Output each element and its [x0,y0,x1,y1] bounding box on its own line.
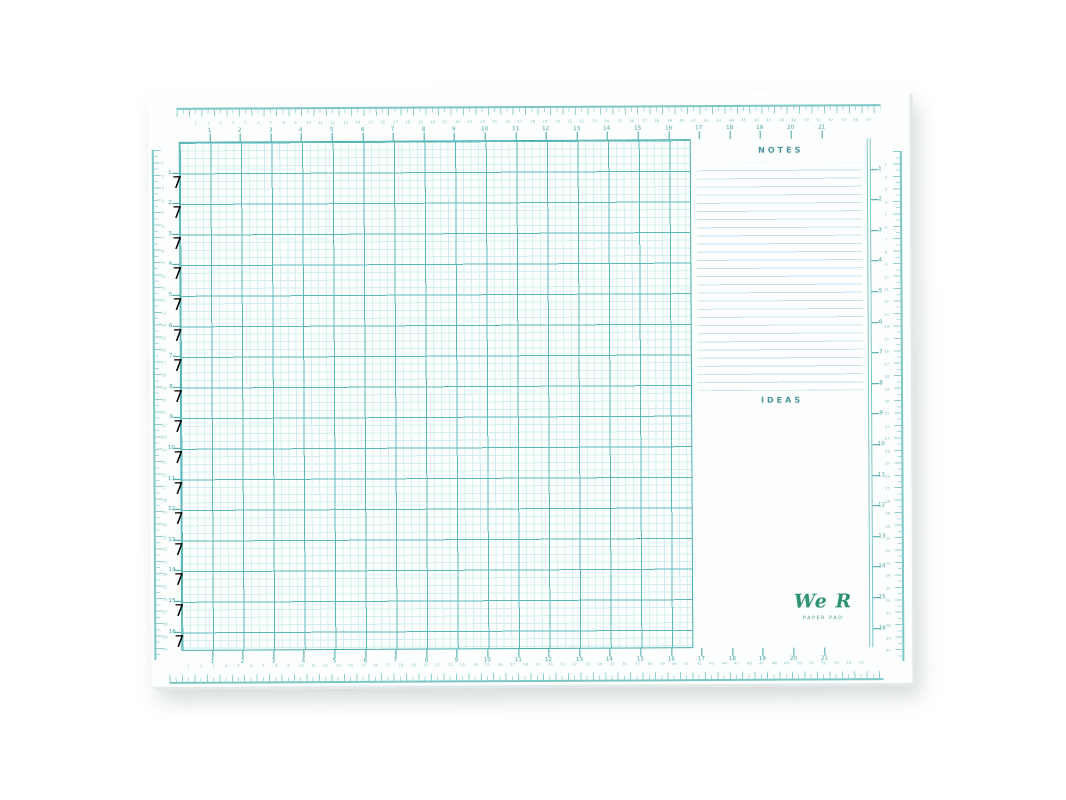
right-edge-ruler-number: 26 [885,475,890,479]
right-edge-ruler-number: 38 [886,624,891,628]
left-edge-ruler-number: 40 [163,648,168,652]
inner-right-ruler [867,138,874,647]
bottom-edge-ruler-number: 50 [797,662,802,666]
left-edge-ruler-number: 27 [162,486,167,490]
grid-col-tick [638,131,639,139]
grid-col-tick [824,647,825,655]
grid-col-number: 12 [542,126,549,132]
grid-col-tick [212,651,213,659]
left-edge-ruler-number: 22 [162,424,167,428]
grid-row-number: 9 [879,411,883,417]
grid-col-number: 4 [299,127,303,133]
left-edge-ruler-number: 29 [162,511,167,515]
left-edge-ruler-number: 18 [162,374,167,378]
grid-col-tick [423,133,424,141]
grid-col-number: 19 [756,125,763,131]
left-edge-ruler-number: 37 [163,611,168,615]
grid-row-tick: 7 [173,448,180,449]
grid-row-tick: 7 [174,509,181,510]
top-edge-ruler-number: 46 [754,119,759,123]
left-edge-ruler-number: 25 [162,461,167,465]
grid-row-tick [872,444,879,445]
grid-row-tick [873,536,880,537]
left-edge-ruler-number: 20 [162,399,167,403]
bottom-edge-ruler-number: 52 [821,662,826,666]
right-edge-ruler-number: 2 [885,176,887,180]
top-edge-ruler-number: 51 [816,119,821,123]
bottom-edge-ruler-number: 36 [622,663,627,667]
grid-row-number: 6 [879,319,883,325]
right-edge-ruler-number: 20 [885,400,890,404]
grid-col-number: 3 [269,128,273,134]
bottom-edge-ruler-number: 39 [660,662,665,666]
left-edge-ruler-number: 2 [162,175,164,179]
grid-row-tick: 7 [173,295,180,296]
grid-col-tick [671,648,672,656]
bottom-edge-ruler-number: 16 [373,664,378,668]
top-edge-ruler-number: 28 [530,120,535,124]
right-edge-ruler-number: 9 [885,263,887,267]
bottom-edge-ruler-number: 37 [635,663,640,667]
right-edge-ruler-number: 23 [885,438,890,442]
bottom-edge-ruler-number: 47 [759,662,764,666]
grid-col-tick [549,649,550,657]
bottom-edge-ruler-number: 3 [213,665,215,669]
bottom-edge-ruler-number: 23 [460,663,465,667]
grid-col-tick [243,651,244,659]
bottom-edge-ruler-number: 43 [709,662,714,666]
bottom-edge-ruler [169,668,883,684]
top-edge-ruler-number: 53 [841,118,846,122]
top-edge-ruler-number: 30 [555,120,560,124]
left-edge-ruler-number: 12 [161,299,166,303]
bottom-edge-ruler-number: 29 [535,663,540,667]
top-edge-ruler-number: 47 [766,119,771,123]
bottom-edge-ruler-number: 38 [647,663,652,667]
left-edge-ruler-number: 34 [163,573,168,577]
grid-col-tick [332,133,333,141]
left-edge-ruler-number: 36 [163,598,168,602]
top-edge-ruler-number: 7 [270,121,272,125]
right-edge-ruler-number: 24 [885,450,890,454]
grid-col-number: 13 [573,126,580,132]
grid-row-tick: 7 [172,172,179,173]
grid-col-number: 2 [241,659,245,665]
left-edge-ruler-number: 32 [162,548,167,552]
left-edge-ruler-number: 23 [162,436,167,440]
top-edge-ruler-number: 3 [220,122,222,126]
bottom-edge-ruler-number: 2 [200,665,202,669]
grid-col-tick [668,131,669,139]
left-edge-ruler-number: 33 [163,561,168,565]
grid-row-tick [871,199,878,200]
top-edge-ruler-number: 43 [717,119,722,123]
top-edge-ruler-number: 40 [679,119,684,123]
top-edge-ruler-number: 1 [195,122,197,126]
top-edge-ruler-number: 4 [232,122,234,126]
grid-row-tick [871,291,878,292]
top-edge-ruler-number: 22 [455,121,460,125]
grid-col-number: 6 [360,127,364,133]
bottom-edge-ruler-number: 34 [597,663,602,667]
left-edge-ruler-number: 8 [162,250,164,254]
left-edge-ruler-number: 7 [162,237,164,241]
grid-row-tick: 7 [174,631,181,632]
left-edge-ruler-number: 9 [162,262,164,266]
notes-title: NOTES [758,146,803,155]
bottom-edge-ruler-number: 26 [498,663,503,667]
left-edge-ruler-number: 28 [162,499,167,503]
grid-col-number: 11 [514,657,521,663]
top-edge-ruler-number: 34 [605,120,610,124]
left-edge-ruler-number: 5 [162,212,164,216]
bottom-edge-ruler-number: 45 [734,662,739,666]
right-edge-ruler-number: 14 [884,326,889,330]
bottom-edge-ruler-number: 46 [747,662,752,666]
top-edge-ruler-number: 55 [866,118,871,122]
top-edge-ruler-number: 10 [306,121,311,125]
grid-col-number: 9 [452,127,456,133]
grid-col-tick [760,131,761,139]
graph-grid [179,139,694,651]
left-edge-ruler-number: 26 [162,474,167,478]
top-edge-ruler-number: 26 [505,120,510,124]
grid-row-tick [872,322,879,323]
right-edge-ruler-number: 16 [884,350,889,354]
right-edge-ruler-number: 30 [885,525,890,529]
left-edge-ruler-number: 24 [162,449,167,453]
left-edge-ruler-number: 21 [162,411,167,415]
bottom-edge-ruler-number: 25 [485,663,490,667]
bottom-edge-ruler-number: 9 [287,664,289,668]
bottom-edge-ruler-number: 8 [275,664,277,668]
left-edge-ruler-number: 17 [161,362,166,366]
top-edge-ruler-number: 32 [580,120,585,124]
bottom-edge-ruler-number: 19 [411,664,416,668]
top-edge-ruler-number: 2 [207,122,209,126]
bottom-edge-ruler-number: 53 [834,662,839,666]
bottom-edge-ruler-number: 54 [846,661,851,665]
grid-row-tick [871,261,878,262]
left-edge-ruler-number: 10 [161,275,166,279]
bottom-edge-ruler-number: 6 [250,665,252,669]
grid-col-number: 17 [695,125,702,131]
brand-logo: We R PAPER PAD [763,592,883,622]
grid-row-tick: 7 [174,601,181,602]
right-edge-ruler-number: 12 [884,301,889,305]
left-edge-ruler-number: 11 [161,287,166,291]
grid-col-number: 7 [394,658,398,664]
grid-col-tick [640,648,641,656]
top-edge-ruler-number: 15 [368,121,373,125]
left-edge-ruler-number: 6 [162,225,164,229]
grid-col-tick [240,134,241,142]
top-edge-ruler-number: 37 [642,120,647,124]
grid-col-tick [487,649,488,657]
grid-col-tick [821,130,822,138]
bottom-edge-ruler-number: 31 [560,663,565,667]
grid-col-tick [793,648,794,656]
left-edge-ruler-number: 14 [161,324,166,328]
grid-col-tick [576,132,577,140]
grid-col-number: 1 [207,128,211,134]
bottom-edge-ruler-number: 12 [323,664,328,668]
grid-col-number: 20 [787,125,794,131]
bottom-edge-ruler-number: 41 [685,662,690,666]
left-edge-ruler-number: 16 [161,349,166,353]
top-edge-ruler [177,104,881,120]
grid-col-tick [209,134,210,142]
grid-col-number: 8 [422,127,426,133]
right-edge-ruler-number: 10 [884,276,889,280]
right-edge-ruler-number: 8 [885,251,887,255]
top-edge-ruler-number: 8 [282,121,284,125]
bottom-edge-ruler-number: 27 [510,663,515,667]
top-edge-ruler-number: 16 [380,121,385,125]
bottom-edge-ruler-number: 48 [772,662,777,666]
grid-row-tick [871,169,878,170]
bottom-edge-ruler-number: 51 [809,662,814,666]
right-edge-ruler-number: 3 [885,189,887,193]
grid-col-tick [607,132,608,140]
right-edge-ruler-number: 11 [884,288,889,292]
top-edge-ruler-number: 27 [517,120,522,124]
grid-col-number: 16 [665,125,672,131]
grid-col-tick [791,131,792,139]
right-edge-ruler-number: 34 [886,575,891,579]
grid-row-number: 1 [878,166,882,172]
top-edge-ruler-number: 6 [257,122,259,126]
top-edge-ruler-number: 11 [318,121,323,125]
bottom-edge-ruler-number: 21 [436,664,441,668]
top-edge-ruler-number: 21 [443,121,448,125]
grid-col-tick [393,133,394,141]
top-edge-ruler-number: 31 [567,120,572,124]
grid-col-tick [270,133,271,141]
grid-row-tick [872,414,879,415]
bottom-edge-ruler-number: 42 [697,662,702,666]
bottom-edge-ruler-number: 40 [672,662,677,666]
grid-row-number: 3 [878,227,882,233]
right-edge-ruler-number: 13 [884,313,889,317]
grid-col-number: 18 [726,125,733,131]
grid-row-number: 5 [879,288,883,294]
left-edge-ruler-number: 1 [162,162,164,166]
right-edge-ruler-number: 21 [885,413,890,417]
grid-col-tick [396,650,397,658]
paper-pad: NOTES IDEAS We R PAPER PAD 1122334455667… [148,90,911,686]
grid-row-tick: 7 [173,356,180,357]
grid-col-tick [304,650,305,658]
bottom-edge-ruler-number: 32 [572,663,577,667]
left-edge-ruler-number: 13 [161,312,166,316]
right-edge-ruler-number: 35 [886,587,891,591]
grid-col-number: 15 [634,126,641,132]
grid-col-tick [610,649,611,657]
grid-col-tick [334,650,335,658]
top-edge-ruler-number: 5 [245,122,247,126]
right-edge-ruler-number: 1 [885,164,887,168]
bottom-edge-ruler-number: 11 [311,664,316,668]
top-edge-ruler-number: 42 [704,119,709,123]
grid-col-tick [301,133,302,141]
product-photo: NOTES IDEAS We R PAPER PAD 1122334455667… [0,0,1066,800]
brand-logo-script: We R [763,592,883,612]
grid-col-tick [485,132,486,140]
grid-col-tick [732,648,733,656]
right-edge-ruler-number: 39 [886,637,891,641]
grid-col-tick [702,648,703,656]
right-edge-ruler-number: 25 [885,463,890,467]
top-edge-ruler-number: 48 [779,119,784,123]
top-edge-ruler-number: 35 [617,120,622,124]
grid-row-tick [873,628,880,629]
grid-row-number: 2 [878,197,882,203]
right-edge-ruler-number: 19 [885,388,890,392]
top-edge-ruler-number: 9 [294,121,296,125]
grid-col-tick [729,131,730,139]
right-edge-ruler-number: 4 [885,201,887,205]
grid-col-tick [365,650,366,658]
grid-row-tick: 7 [174,540,181,541]
left-edge-ruler-number: 19 [162,387,167,391]
grid-row-number: 4 [879,258,883,264]
top-edge-ruler-number: 17 [393,121,398,125]
bottom-edge-ruler-number: 7 [262,665,264,669]
grid-col-tick [546,132,547,140]
grid-col-tick [273,650,274,658]
bottom-edge-ruler-number: 18 [398,664,403,668]
grid-col-tick [699,131,700,139]
right-edge-ruler-number: 29 [885,512,890,516]
grid-row-tick [872,352,879,353]
grid-row-tick: 7 [174,570,181,571]
grid-row-tick: 7 [172,203,179,204]
grid-row-tick [873,597,880,598]
ideas-title: IDEAS [761,396,803,405]
grid-row-tick [872,475,879,476]
grid-row-tick: 7 [172,234,179,235]
left-edge-ruler-number: 39 [163,636,168,640]
notes-ruled-lines [697,162,863,391]
bottom-edge-ruler-number: 55 [859,661,864,665]
bottom-edge-ruler-number: 10 [299,664,304,668]
top-edge-ruler-number: 39 [667,119,672,123]
bottom-edge-ruler-number: 15 [361,664,366,668]
grid-col-tick [763,648,764,656]
top-edge-ruler-number: 52 [829,119,834,123]
grid-row-tick [872,383,879,384]
bottom-edge-ruler-number: 1 [188,665,190,669]
right-edge-ruler-number: 31 [885,537,890,541]
grid-row-tick [873,505,880,506]
left-edge-ruler-number: 38 [163,623,168,627]
grid-row-tick: 7 [173,478,180,479]
right-edge-ruler-number: 5 [885,214,887,218]
grid-col-tick [515,132,516,140]
grid-col-number: 9 [455,658,459,664]
grid-row-tick [871,230,878,231]
right-edge-ruler-number: 6 [885,226,887,230]
grid-col-tick [518,649,519,657]
right-edge-ruler-number: 7 [885,238,887,242]
bottom-edge-ruler-number: 35 [610,663,615,667]
top-edge-ruler-number: 12 [331,121,336,125]
bottom-edge-ruler-number: 20 [423,664,428,668]
grid-col-tick [457,649,458,657]
grid-col-tick [362,133,363,141]
left-edge-ruler-number: 31 [162,536,167,540]
bottom-edge-ruler-number: 4 [225,665,227,669]
grid-row-tick: 7 [173,387,180,388]
left-edge-ruler-number: 4 [162,200,164,204]
right-edge-ruler-number: 36 [886,599,891,603]
left-edge-ruler-number: 30 [162,524,167,528]
top-edge-ruler-number: 25 [492,120,497,124]
top-edge-ruler-number: 45 [741,119,746,123]
top-edge-ruler-number: 19 [418,121,423,125]
grid-col-tick [454,132,455,140]
grid-col-number: 7 [391,127,395,133]
right-edge-ruler-number: 18 [885,375,890,379]
bottom-edge-ruler-number: 22 [448,664,453,668]
top-edge-ruler-number: 54 [854,118,859,122]
top-edge-ruler-number: 49 [791,119,796,123]
right-edge-ruler-number: 27 [885,487,890,491]
left-edge-ruler-number: 15 [161,337,166,341]
left-edge-ruler-number: 35 [163,586,168,590]
grid-col-number: 21 [818,125,825,131]
bottom-edge-ruler-number: 24 [473,663,478,667]
right-edge-ruler-number: 37 [886,612,891,616]
top-edge-ruler-number: 29 [542,120,547,124]
grid-col-number: 2 [238,128,242,134]
bottom-edge-ruler-number: 14 [348,664,353,668]
right-edge-ruler-number: 40 [886,649,891,653]
top-edge-ruler-number: 14 [356,121,361,125]
right-edge-ruler [890,151,905,661]
bottom-edge-ruler-number: 28 [523,663,528,667]
grid-row-tick: 7 [173,417,180,418]
grid-col-tick [579,649,580,657]
top-edge-ruler-number: 33 [592,120,597,124]
bottom-edge-ruler-number: 13 [336,664,341,668]
right-edge-ruler-number: 17 [885,363,890,367]
top-edge-ruler-number: 13 [343,121,348,125]
top-edge-ruler-number: 38 [654,119,659,123]
grid-col-number: 10 [481,126,488,132]
grid-col-number: 5 [330,127,334,133]
grid-row-number: 7 [879,350,883,356]
right-edge-ruler-number: 32 [885,550,890,554]
brand-logo-subtext: PAPER PAD [775,615,871,621]
grid-col-number: 14 [603,126,610,132]
top-edge-ruler-number: 50 [804,119,809,123]
left-edge-ruler-number: 3 [162,187,164,191]
top-edge-ruler-number: 24 [480,120,485,124]
bottom-edge-ruler-number: 49 [784,662,789,666]
grid-row-number: 8 [879,380,883,386]
top-edge-ruler-number: 20 [430,121,435,125]
top-edge-ruler-number: 36 [629,120,634,124]
grid-col-number: 20 [790,656,797,662]
bottom-edge-ruler-number: 33 [585,663,590,667]
grid-row-tick: 7 [173,325,180,326]
top-edge-ruler-number: 18 [405,121,410,125]
grid-col-tick [426,650,427,658]
right-edge-ruler-number: 33 [886,562,891,566]
bottom-edge-ruler-number: 17 [386,664,391,668]
